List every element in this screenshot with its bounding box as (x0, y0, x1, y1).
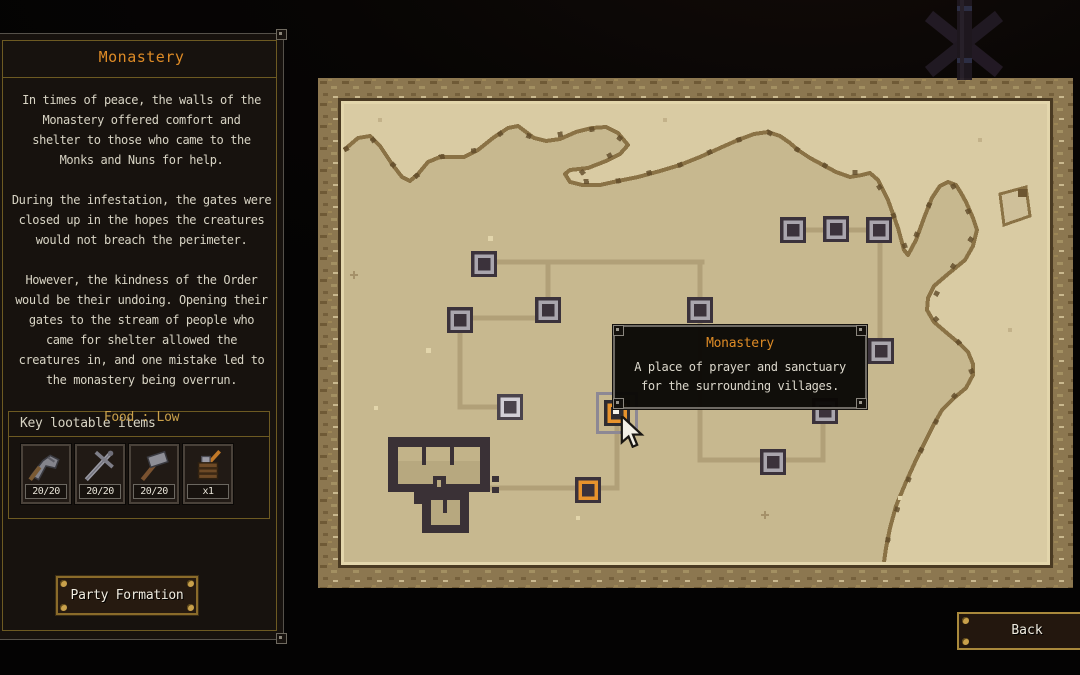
map-node-normal[interactable] (866, 217, 892, 243)
tooltip-corner-ornament (856, 398, 867, 409)
button-corner-ornament (60, 580, 67, 587)
game-screen: Monastery In times of peace, the walls o… (0, 0, 1080, 675)
tooltip-corner-ornament (856, 325, 867, 336)
map-node-normal[interactable] (780, 217, 806, 243)
banner-cross-decoration (925, 0, 1009, 84)
loot-item-slot[interactable]: 20/20 (21, 444, 71, 504)
party-formation-button[interactable]: Party Formation (56, 576, 198, 615)
button-corner-ornament (962, 638, 969, 645)
button-corner-ornament (60, 604, 67, 611)
item-count: x1 (187, 484, 229, 499)
tooltip-body-line: for the surrounding villages. (615, 377, 865, 396)
button-corner-ornament (187, 580, 194, 587)
location-tooltip: Monastery A place of prayer and sanctuar… (613, 325, 867, 409)
panel-paragraph: In times of peace, the walls of theMonas… (0, 90, 283, 170)
loot-item-slot[interactable]: x1 (183, 444, 233, 504)
island-rock (1018, 189, 1027, 197)
back-button[interactable]: Back (957, 612, 1080, 650)
panel-corner-ornament (276, 29, 287, 40)
panel-paragraphs: In times of peace, the walls of theMonas… (0, 90, 283, 390)
item-count: 20/20 (133, 484, 175, 499)
hammer-icon (135, 447, 173, 485)
key-lootable-items-box: Key lootable items 20/2020/2020/20x1 (8, 411, 270, 519)
loot-items-row: 20/2020/2020/20x1 (9, 437, 269, 504)
map-node-normal[interactable] (687, 297, 713, 323)
panel-paragraph: During the infestation, the gates werecl… (0, 190, 283, 250)
back-button-label: Back (1011, 623, 1042, 638)
map-node-normal[interactable] (760, 449, 786, 475)
map-node-normal[interactable] (868, 338, 894, 364)
tooltip-title: Monastery (615, 336, 865, 351)
tooltip-corner-ornament (613, 325, 624, 336)
item-count: 20/20 (25, 484, 67, 499)
tooltip-corner-ornament (613, 398, 624, 409)
map-node-normal[interactable] (471, 251, 497, 277)
sword-icon (81, 447, 119, 485)
panel-corner-ornament (276, 633, 287, 644)
party-formation-label: Party Formation (71, 588, 184, 603)
panel-paragraph: However, the kindness of the Orderwould … (0, 270, 283, 390)
item-count: 20/20 (79, 484, 121, 499)
tooltip-body-line: A place of prayer and sanctuary (615, 358, 865, 377)
map-node-normal[interactable] (447, 307, 473, 333)
supplies-icon (189, 447, 227, 485)
location-title: Monastery (0, 48, 283, 66)
map-node-normal[interactable] (823, 216, 849, 242)
mouse-cursor-icon (620, 416, 646, 452)
button-corner-ornament (962, 617, 969, 624)
map-node-objective[interactable] (575, 477, 601, 503)
tooltip-body: A place of prayer and sanctuaryfor the s… (615, 358, 865, 396)
food-status-label: Food : Low (0, 410, 283, 425)
loot-item-slot[interactable]: 20/20 (129, 444, 179, 504)
title-separator (2, 77, 277, 78)
map-node-normal[interactable] (535, 297, 561, 323)
button-corner-ornament (187, 604, 194, 611)
map-node-visited[interactable] (497, 394, 523, 420)
loot-item-slot[interactable]: 20/20 (75, 444, 125, 504)
axe-icon (27, 447, 65, 485)
location-info-panel: Monastery In times of peace, the walls o… (0, 33, 284, 640)
